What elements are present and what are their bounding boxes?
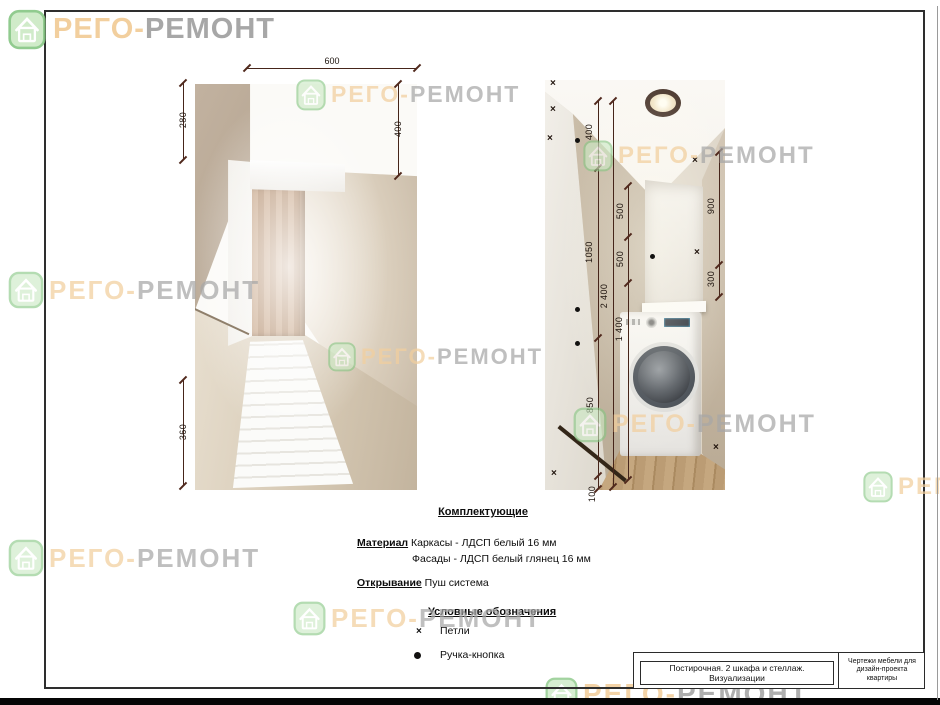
doc-line: Чертежи мебели для (848, 658, 916, 667)
watermark: РЕГО-РЕМОНТ (8, 538, 260, 577)
page-right-edge (937, 6, 938, 700)
watermark: РЕГО-РЕМОНТ (296, 78, 520, 111)
watermark: РЕГО-РЕМОНТ (328, 341, 543, 372)
watermark: РЕГО-РЕМОНТ (8, 270, 260, 309)
company-logo: РЕГО-РЕМОНТ (8, 8, 275, 50)
opening-value: Пуш система (425, 577, 489, 589)
opening-row: Открывание Пуш система (357, 577, 489, 589)
house-icon (8, 270, 44, 309)
house-icon (583, 139, 613, 172)
components-title: Комплектующие (420, 506, 546, 518)
dim-label-360: 360 (178, 412, 188, 452)
legend-knob-symbol (414, 652, 421, 659)
opening-label: Открывание (357, 577, 422, 589)
knob-marker (650, 254, 655, 259)
dim-label-300: 300 (706, 259, 716, 299)
doc-line: квартиры (867, 675, 897, 684)
dim-label-900: 900 (706, 186, 716, 226)
watermark: РЕГО-РЕМОНТ (863, 470, 940, 503)
house-icon (573, 406, 607, 443)
hinge-marker: × (551, 469, 557, 479)
dim-label-500a: 500 (615, 191, 625, 231)
material-label: Материал (357, 537, 408, 549)
title-block-project: Постирочная. 2 шкафа и стеллаж. Визуализ… (640, 661, 834, 685)
watermark: РЕГО-РЕМОНТ (293, 600, 542, 636)
house-icon (328, 341, 356, 372)
title-block: Постирочная. 2 шкафа и стеллаж. Визуализ… (633, 652, 925, 689)
material-row: Материал Каркасы - ЛДСП белый 16 мм (357, 537, 557, 549)
watermark: РЕГО-РЕМОНТ (573, 406, 816, 443)
page-bottom-edge (0, 698, 940, 705)
dim-label-500b: 500 (615, 239, 625, 279)
dim-label-600: 600 (312, 56, 352, 66)
hinge-marker: × (550, 79, 556, 89)
watermark: РЕГО-РЕМОНТ (583, 139, 815, 172)
material-facades: Фасады - ЛДСП белый глянец 16 мм (412, 553, 591, 565)
dim-label-1400: 1 400 (614, 309, 624, 349)
dim-label-1050: 1050 (584, 232, 594, 272)
house-icon (296, 78, 326, 111)
hinge-marker: × (550, 105, 556, 115)
knob-marker (575, 341, 580, 346)
knob-marker (575, 307, 580, 312)
house-icon (293, 600, 326, 636)
knob-marker (575, 138, 580, 143)
legend-knob-label: Ручка-кнопка (440, 649, 504, 661)
material-frames: Каркасы - ЛДСП белый 16 мм (411, 537, 557, 549)
house-icon (8, 8, 46, 50)
drawing-sheet: РЕГО-РЕМОНТ 600 280 400 360 (0, 0, 940, 705)
house-icon (8, 538, 44, 577)
company-logo-text: РЕГО-РЕМОНТ (53, 15, 275, 44)
title-block-doc: Чертежи мебели для дизайн-проекта кварти… (838, 653, 925, 688)
house-icon (863, 470, 893, 503)
dim-label-2400: 2 400 (599, 276, 609, 316)
doc-line: дизайн-проекта (857, 666, 908, 675)
hinge-marker: × (713, 443, 719, 453)
dim-label-400-left: 400 (393, 109, 403, 149)
dim-label-100: 100 (587, 474, 597, 514)
dim-line-600 (247, 68, 417, 69)
dim-chain-right (719, 152, 720, 297)
hinge-marker: × (694, 248, 700, 258)
dim-label-280: 280 (178, 100, 188, 140)
hinge-marker: × (547, 134, 553, 144)
